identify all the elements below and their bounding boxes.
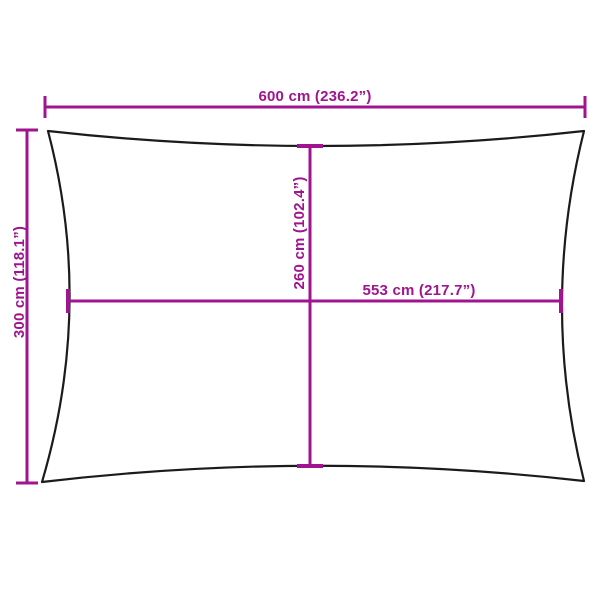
product-dimension-diagram: 600 cm (236.2”) 300 cm (118.1”) 260 cm (… — [0, 0, 600, 600]
diagram-svg: 600 cm (236.2”) 300 cm (118.1”) 260 cm (… — [0, 0, 600, 600]
center-height-dimension-label: 260 cm (102.4”) — [291, 176, 308, 289]
center-width-dimension-label: 553 cm (217.7”) — [362, 282, 475, 299]
width-dimension-label: 600 cm (236.2”) — [258, 88, 371, 105]
height-dimension-label: 300 cm (118.1”) — [11, 226, 28, 338]
sail-outline — [42, 131, 584, 482]
